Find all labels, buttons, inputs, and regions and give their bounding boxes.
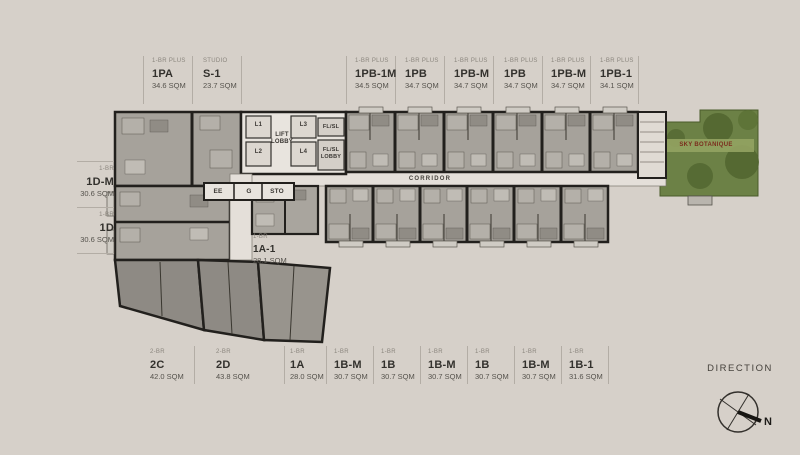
unit-label-1b-1: 1-BR 1B-1 31.6 SQM [569,349,603,381]
label-divider [346,56,347,104]
unit-label-1pb-m: 1-BR PLUS 1PB-M 34.7 SQM [454,58,489,90]
label-divider [608,346,609,384]
room-label-ee: EE [206,188,230,196]
room-label-l1: L1 [246,122,271,129]
label-divider [284,346,285,384]
unit-block-2c-2d [115,260,330,342]
unit-label-1d: 1-BR 1D 30.6 SQM [74,212,114,244]
label-divider [467,346,468,384]
compass [718,392,761,432]
unit-label-1d-m: 1-BR 1D-M 30.6 SQM [74,166,114,198]
label-divider [192,56,193,104]
unit-label-1pa: 1-BR PLUS 1PA 34.6 SQM [152,58,186,90]
unit-label-1b-m: 1-BR 1B-M 30.7 SQM [428,349,462,381]
label-divider [420,346,421,384]
unit-label-1a-1: 1-BR 1A-1 28.1 SQM [253,234,287,265]
label-divider [194,346,195,384]
sky-garden [660,110,759,205]
room-label-fl-sl-lobby: FL/SL LOBBY [318,147,344,160]
floor-plan-page: 1-BR PLUS 1PA 34.6 SQM STUDIO S-1 23.7 S… [0,0,800,455]
sky-garden-label: SKY BOTANIQUE [670,142,742,148]
top-units-row [346,107,638,172]
direction-title: DIRECTION [695,363,785,374]
unit-label-1pb-1m: 1-BR PLUS 1PB-1M 34.5 SQM [355,58,397,90]
room-label-lift-lobby: LIFT LOBBY [268,132,296,146]
room-label-l2: L2 [246,149,271,156]
unit-label-1pb: 1-BR PLUS 1PB 34.7 SQM [504,58,538,90]
label-divider [77,161,114,162]
label-divider [77,207,114,208]
unit-label-1pb: 1-BR PLUS 1PB 34.7 SQM [405,58,439,90]
label-divider [590,56,591,104]
unit-label-s1: STUDIO S-1 23.7 SQM [203,58,237,90]
room-label-l4: L4 [291,149,316,156]
label-divider [143,56,144,104]
room-label-fl-sl: FL/SL [318,124,344,131]
unit-label-1b-m: 1-BR 1B-M 30.7 SQM [522,349,556,381]
bottom-units-row [326,186,608,247]
unit-block-1pa-s1 [115,112,241,186]
unit-label-1b-m: 1-BR 1B-M 30.7 SQM [334,349,368,381]
label-divider [444,56,445,104]
unit-label-1pb-1: 1-BR PLUS 1PB-1 34.1 SQM [600,58,634,90]
label-divider [638,56,639,104]
unit-label-1pb-m: 1-BR PLUS 1PB-M 34.7 SQM [551,58,586,90]
label-divider [373,346,374,384]
label-divider [326,346,327,384]
unit-label-2d: 2-BR 2D 43.8 SQM [216,349,250,381]
room-label-l3: L3 [291,122,316,129]
unit-label-1b: 1-BR 1B 30.7 SQM [475,349,509,381]
label-divider [561,346,562,384]
room-label-corridor: CORRIDOR [400,176,460,183]
label-divider [514,346,515,384]
label-divider [77,253,114,254]
floor-plan-drawing [0,0,800,455]
unit-label-1a: 1-BR 1A 28.0 SQM [290,349,324,381]
label-divider [542,56,543,104]
unit-label-2c: 2-BR 2C 42.0 SQM [150,349,184,381]
unit-label-1b: 1-BR 1B 30.7 SQM [381,349,415,381]
room-label-sto: STO [264,188,290,196]
compass-north-label: N [764,416,772,428]
stair-block [638,112,666,178]
label-divider [241,56,242,104]
room-label-g: G [240,188,258,196]
label-divider [493,56,494,104]
